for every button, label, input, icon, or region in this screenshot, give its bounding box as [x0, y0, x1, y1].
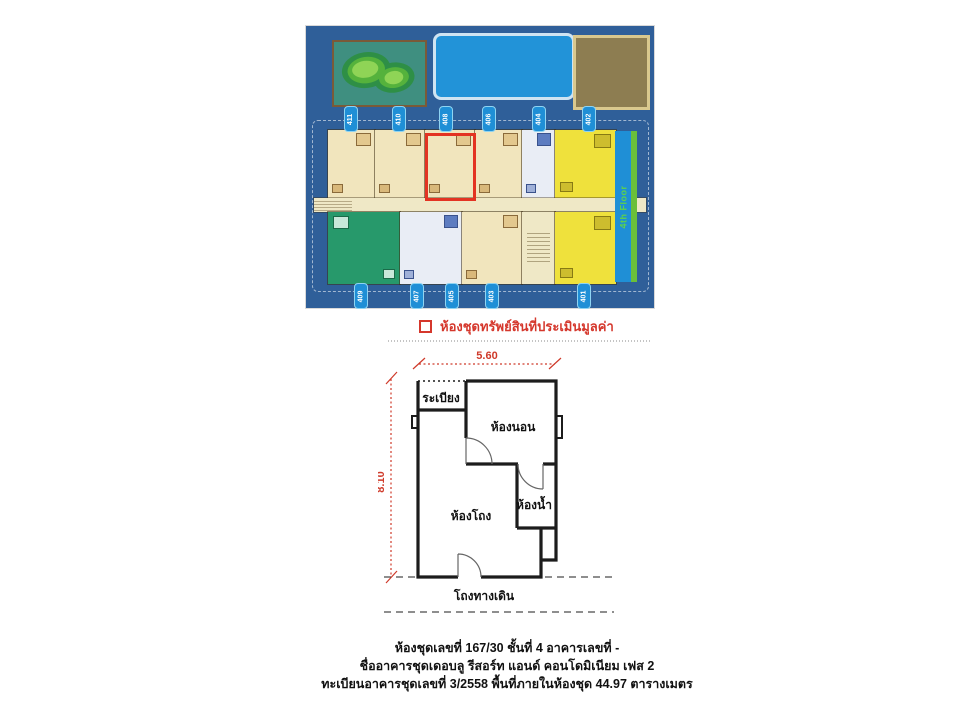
document-page: 4th Floor 411410408406404402409407405403…: [0, 0, 960, 720]
legend-highlight-swatch: [419, 320, 432, 333]
unit-number-label: 410: [396, 113, 403, 125]
unit-number-badge: 408: [439, 106, 453, 132]
corridor-label: โถงทางเดิน: [453, 588, 515, 603]
unit-details: ห้องชุดเลขที่ 167/30 ชั้นที่ 4 อาคารเลขท…: [300, 639, 714, 693]
unit-cell: [462, 212, 522, 284]
unit-number-label: 405: [449, 290, 456, 302]
unit-number-label: 401: [581, 290, 588, 302]
unit-number-label: 402: [586, 113, 593, 125]
living-label: ห้องโถง: [451, 508, 492, 523]
detail-line-1: ห้องชุดเลขที่ 167/30 ชั้นที่ 4 อาคารเลขท…: [300, 639, 714, 657]
unit-number-badge: 410: [392, 106, 406, 132]
balcony-label: ระเบียง: [422, 391, 460, 405]
unit-cell: [375, 130, 425, 198]
floor-label: 4th Floor: [618, 185, 628, 228]
unit-number-badge: 405: [445, 283, 459, 309]
wall-window-notches: [412, 416, 562, 438]
unit-number-badge: 406: [482, 106, 496, 132]
height-dimension-value: 8.10: [378, 471, 387, 492]
unit-number-label: 404: [536, 113, 543, 125]
unit-cell: [328, 130, 375, 198]
detail-line-2: ชื่ออาคารชุดเดอบลู รีสอร์ท แอนด์ คอนโดมิ…: [300, 657, 714, 675]
unit-number-badge: 411: [344, 106, 358, 132]
site-plan: 4th Floor 411410408406404402409407405403…: [306, 26, 654, 308]
appraised-unit-highlight: [425, 133, 476, 201]
unit-floor-plan-drawing: 5.60 8.10 ระเบียง ห้องนอน ห้องโถง ห้องน้…: [378, 336, 658, 626]
unit-number-badge: 402: [582, 106, 596, 132]
unit-number-label: 409: [358, 290, 365, 302]
unit-cell: [522, 130, 555, 198]
unit-number-badge: 404: [532, 106, 546, 132]
legend-label: ห้องชุดทรัพย์สินที่ประเมินมูลค่า: [440, 316, 614, 337]
unit-number-badge: 407: [410, 283, 424, 309]
bathroom-label: ห้องน้ำ: [516, 495, 552, 512]
width-dimension-value: 5.60: [476, 350, 497, 362]
corridor-walkway: [314, 198, 646, 212]
unit-number-label: 411: [347, 113, 354, 124]
green-blob-graphic: [334, 42, 425, 105]
unit-cell: [475, 130, 522, 198]
floor-bar-green-strip: [631, 131, 637, 282]
detail-line-3: ทะเบียนอาคารชุดเลขที่ 3/2558 พื้นที่ภายใ…: [300, 675, 714, 693]
unit-number-badge: 403: [485, 283, 499, 309]
unit-walls: [418, 381, 556, 577]
unit-number-label: 408: [443, 113, 450, 125]
unit-number-badge: 409: [354, 283, 368, 309]
unit-cell: [328, 212, 400, 284]
floor-indicator-bar: 4th Floor: [615, 131, 631, 282]
unit-number-label: 406: [486, 113, 493, 125]
legend: ห้องชุดทรัพย์สินที่ประเมินมูลค่า: [419, 316, 614, 337]
bedroom-label: ห้องนอน: [491, 420, 536, 434]
unit-number-badge: 401: [577, 283, 591, 309]
stairwell-cell: [522, 212, 555, 284]
unit-cell: [555, 130, 616, 198]
dimension-arrow-ticks: [386, 358, 561, 583]
unit-cell: [400, 212, 462, 284]
unit-cell: [555, 212, 616, 284]
swimming-pool: [433, 33, 575, 100]
deck-area: [573, 35, 650, 110]
unit-number-label: 407: [414, 290, 421, 302]
unit-number-label: 403: [489, 290, 496, 302]
garden-putting-green: [332, 40, 427, 107]
